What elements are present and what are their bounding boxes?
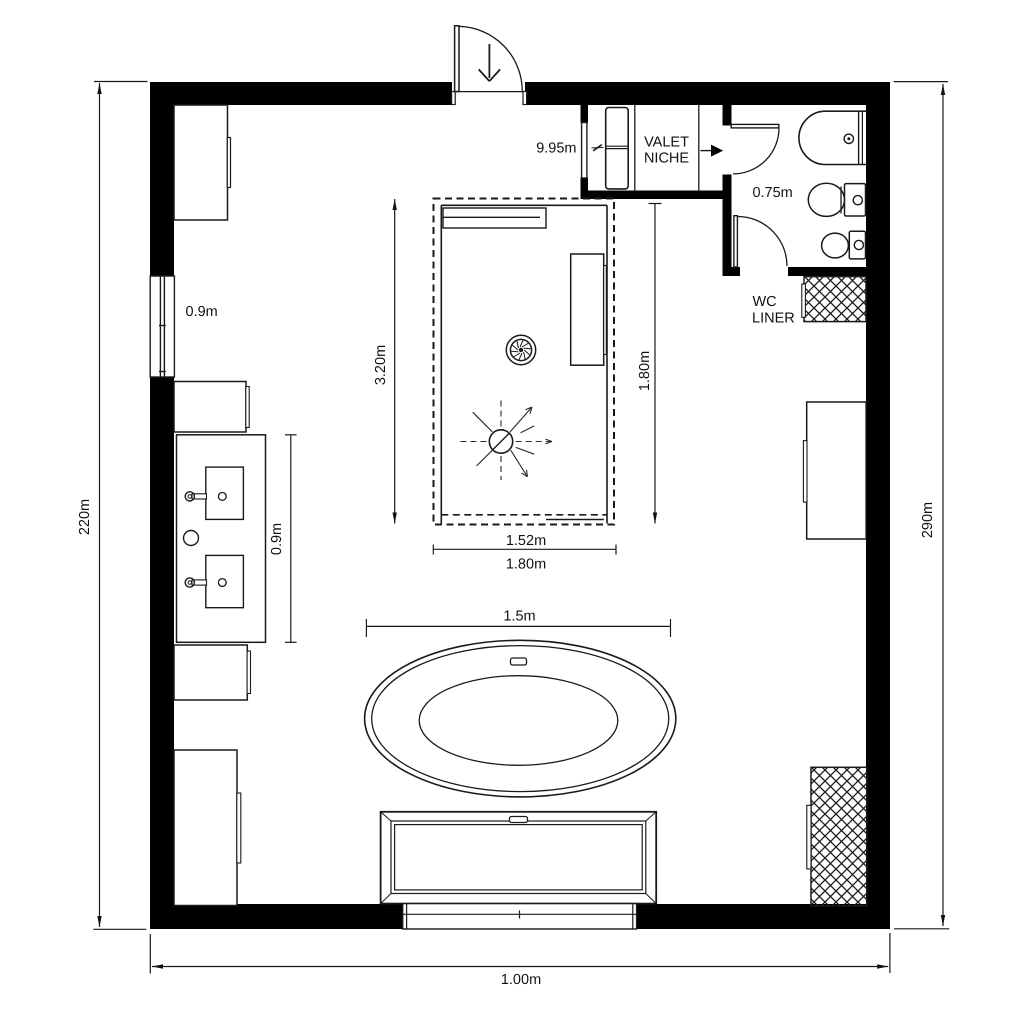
svg-text:NICHE: NICHE <box>644 151 689 167</box>
svg-text:3.20m: 3.20m <box>373 345 389 385</box>
svg-text:LINER: LINER <box>752 310 795 326</box>
svg-text:0.75m: 0.75m <box>752 185 792 201</box>
svg-text:290m: 290m <box>920 502 936 538</box>
svg-text:220m: 220m <box>77 499 93 535</box>
svg-text:1.80m: 1.80m <box>637 351 653 391</box>
svg-text:WC: WC <box>753 294 777 310</box>
svg-text:1.00m: 1.00m <box>501 972 541 988</box>
svg-text:9.95m: 9.95m <box>536 140 576 156</box>
svg-text:1.5m: 1.5m <box>503 609 535 625</box>
svg-text:0.9m: 0.9m <box>269 523 285 555</box>
svg-text:1.52m: 1.52m <box>506 533 546 549</box>
svg-text:1.80m: 1.80m <box>506 557 546 573</box>
svg-text:0.9m: 0.9m <box>186 304 218 320</box>
svg-text:VALET: VALET <box>644 134 689 150</box>
